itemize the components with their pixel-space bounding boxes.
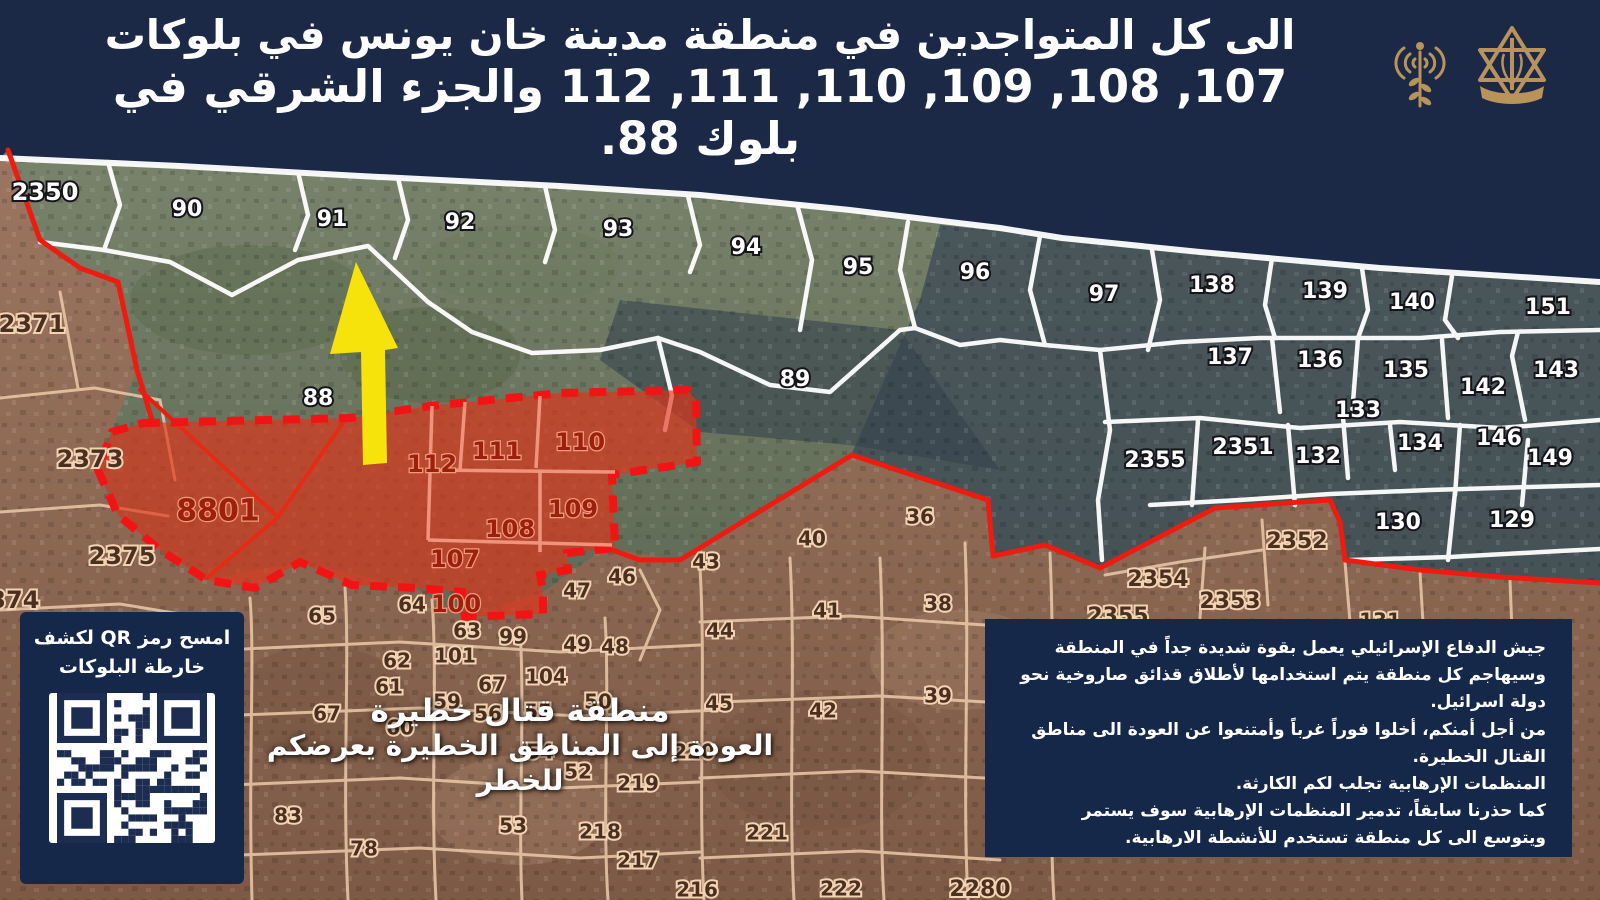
qr-module [71, 779, 78, 786]
block-label-44: 44 [706, 619, 734, 643]
qr-module [136, 757, 143, 764]
qr-module [200, 764, 207, 771]
qr-module [78, 779, 85, 786]
qr-module [143, 757, 150, 764]
qr-module [193, 800, 200, 807]
qr-module [114, 757, 121, 764]
qr-module [171, 807, 178, 814]
notice-line: وسيهاجم كل منطقة يتم استخدامها لأطلاق قذ… [1001, 662, 1546, 689]
block-label-2352: 2352 [1266, 529, 1327, 554]
qr-module [136, 829, 143, 836]
qr-module [114, 800, 121, 807]
qr-module [150, 750, 157, 757]
block-label-139: 139 [1302, 279, 1348, 304]
block-label-88: 88 [303, 386, 334, 411]
qr-module [186, 757, 193, 764]
qr-module [186, 771, 193, 778]
block-label-53: 53 [499, 814, 527, 838]
block-label-216: 216 [676, 878, 718, 900]
block-label-48: 48 [601, 635, 629, 659]
block-label-93: 93 [603, 217, 634, 242]
qr-module [100, 764, 107, 771]
qr-module [136, 729, 143, 736]
qr-module [178, 786, 185, 793]
block-label-89: 89 [780, 367, 811, 392]
qr-module [136, 793, 143, 800]
qr-module [121, 821, 128, 828]
notice-line: القتال الخطيرة. [1001, 744, 1546, 771]
qr-module [164, 807, 171, 814]
qr-module [200, 793, 207, 800]
block-label-143: 143 [1533, 358, 1579, 383]
qr-module [136, 786, 143, 793]
block-label-2350: 2350 [12, 178, 79, 206]
qr-module [150, 764, 157, 771]
qr-module [93, 779, 100, 786]
block-label-140: 140 [1389, 290, 1435, 315]
qr-module [143, 814, 150, 821]
qr-module [178, 807, 185, 814]
qr-module [164, 750, 171, 757]
qr-module [157, 786, 164, 793]
qr-module [143, 721, 150, 728]
block-label-138: 138 [1189, 273, 1235, 298]
block-label-47: 47 [563, 579, 591, 603]
qr-module [128, 829, 135, 836]
block-label-221: 221 [746, 821, 788, 845]
qr-module [136, 764, 143, 771]
qr-module [64, 750, 71, 757]
danger-warning-text: منطقة قتال خطيرة العودة إلى المناطق الخط… [240, 694, 800, 798]
header-line1: الى كل المتواجدين في منطقة مدينة خان يون… [70, 10, 1330, 61]
block-label-104: 104 [525, 665, 567, 689]
block-label-111: 111 [472, 437, 522, 465]
qr-module [57, 779, 64, 786]
qr-module [114, 729, 121, 736]
qr-module [128, 836, 135, 843]
qr-module [178, 836, 185, 843]
qr-module [114, 700, 121, 707]
qr-module [86, 771, 93, 778]
block-label-2375: 2375 [89, 542, 156, 570]
header-announcement: الى كل المتواجدين في منطقة مدينة خان يون… [70, 10, 1330, 165]
header-logos [1384, 22, 1554, 117]
qr-module [136, 714, 143, 721]
qr-module [171, 821, 178, 828]
qr-module [150, 757, 157, 764]
qr-module [193, 807, 200, 814]
idf-emblem-icon [1470, 24, 1554, 116]
header-line2: 107, 108, 109, 110, 111, 112 والجزء الشر… [70, 61, 1330, 165]
block-label-2355: 2355 [1124, 448, 1185, 473]
qr-module [136, 779, 143, 786]
radio-broadcast-icon [1384, 26, 1456, 114]
block-label-2354: 2354 [1127, 567, 1188, 592]
qr-module [164, 779, 171, 786]
block-label-46: 46 [608, 565, 636, 589]
notice-line: كما حذرنا سابقاً، تدمير المنظمات الإرهاب… [1001, 798, 1546, 825]
block-label-83: 83 [274, 804, 302, 828]
block-label-151: 151 [1525, 295, 1571, 320]
block-label-78: 78 [350, 837, 378, 861]
qr-module [136, 736, 143, 743]
qr-module [186, 786, 193, 793]
qr-module [150, 786, 157, 793]
qr-module [200, 750, 207, 757]
block-label-149: 149 [1527, 446, 1573, 471]
qr-module [86, 764, 93, 771]
block-label-218: 218 [579, 820, 621, 844]
block-label-2374: 2374 [0, 586, 39, 614]
block-label-109: 109 [548, 495, 598, 523]
qr-module [100, 757, 107, 764]
qr-module [178, 821, 185, 828]
block-label-36: 36 [906, 505, 934, 529]
qr-module [143, 714, 150, 721]
qr-module [114, 793, 121, 800]
block-label-39: 39 [924, 684, 952, 708]
qr-module [186, 836, 193, 843]
block-label-222: 222 [820, 877, 862, 900]
qr-module [193, 757, 200, 764]
qr-module [171, 829, 178, 836]
qr-module [186, 807, 193, 814]
block-label-91: 91 [317, 207, 348, 232]
block-label-64: 64 [398, 593, 426, 617]
qr-module [78, 757, 85, 764]
qr-module [200, 807, 207, 814]
notice-line: جيش الدفاع الإسرائيلي يعمل بقوة شديدة جد… [1001, 635, 1546, 662]
qr-module [121, 750, 128, 757]
qr-module [193, 786, 200, 793]
qr-module [114, 714, 121, 721]
block-label-90: 90 [172, 197, 203, 222]
notice-line: دولة اسرائيل. [1001, 689, 1546, 716]
qr-module [121, 807, 128, 814]
block-label-63: 63 [453, 619, 481, 643]
block-label-41: 41 [813, 599, 841, 623]
block-label-130: 130 [1375, 510, 1421, 535]
qr-panel: امسح رمز QR لكشف خارطة البلوكات [20, 612, 244, 884]
qr-module [71, 757, 78, 764]
block-label-2371: 2371 [0, 310, 65, 338]
qr-module [164, 821, 171, 828]
qr-module [71, 807, 92, 828]
block-label-217: 217 [617, 849, 659, 873]
qr-module [164, 771, 171, 778]
qr-module [100, 750, 107, 757]
qr-module [164, 786, 171, 793]
qr-module [71, 707, 92, 728]
qr-module [193, 771, 200, 778]
block-label-132: 132 [1295, 444, 1341, 469]
block-label-2353: 2353 [1199, 589, 1260, 614]
block-label-101: 101 [434, 644, 476, 668]
block-label-110: 110 [555, 428, 605, 456]
block-label-40: 40 [798, 527, 826, 551]
qr-module [114, 836, 121, 843]
block-label-2280: 2280 [949, 877, 1010, 900]
block-label-95: 95 [843, 255, 874, 280]
qr-module [186, 821, 193, 828]
notice-line: من أجل أمنكم، أخلوا فوراً غرباً وأمتنعوا… [1001, 717, 1546, 744]
block-label-99: 99 [499, 625, 527, 649]
block-label-107: 107 [430, 545, 480, 573]
qr-module [164, 800, 171, 807]
block-label-2373: 2373 [57, 445, 124, 473]
qr-module [178, 814, 185, 821]
qr-module [64, 771, 71, 778]
qr-module [121, 764, 128, 771]
qr-module [100, 779, 107, 786]
notice-line: ويتوسع الى كل منطقة تستخدم للأنشطة الاره… [1001, 825, 1546, 852]
block-label-8801: 8801 [176, 494, 260, 529]
qr-module [71, 771, 78, 778]
block-label-96: 96 [960, 260, 991, 285]
qr-code-image [57, 693, 207, 843]
warning-line2: العودة إلى المناطق الخطيرة يعرضكم للخطر [240, 728, 800, 798]
qr-module [128, 793, 135, 800]
qr-module [193, 750, 200, 757]
qr-module [143, 693, 150, 700]
qr-module [171, 786, 178, 793]
block-label-137: 137 [1207, 345, 1253, 370]
qr-module [107, 750, 114, 757]
block-label-94: 94 [731, 235, 762, 260]
qr-module [121, 729, 128, 736]
qr-module [136, 800, 143, 807]
qr-module [136, 721, 143, 728]
qr-module [114, 779, 121, 786]
qr-module [186, 829, 193, 836]
qr-title-line1: امسح رمز QR لكشف [20, 624, 244, 653]
block-label-49: 49 [563, 633, 591, 657]
block-label-42: 42 [809, 699, 837, 723]
block-label-134: 134 [1397, 431, 1443, 456]
block-label-38: 38 [924, 592, 952, 616]
qr-module [200, 800, 207, 807]
qr-module [171, 764, 178, 771]
block-label-136: 136 [1297, 348, 1343, 373]
qr-module [171, 836, 178, 843]
qr-module [128, 764, 135, 771]
qr-module [107, 757, 114, 764]
qr-module [143, 793, 150, 800]
block-label-97: 97 [1089, 282, 1120, 307]
qr-module [150, 814, 157, 821]
qr-module [128, 814, 135, 821]
block-label-112: 112 [407, 450, 457, 478]
block-label-133: 133 [1335, 398, 1381, 423]
qr-module [121, 771, 128, 778]
qr-module [93, 764, 100, 771]
qr-module [143, 786, 150, 793]
qr-title-line2: خارطة البلوكات [20, 653, 244, 682]
qr-module [107, 764, 114, 771]
block-label-92: 92 [445, 210, 476, 235]
qr-module [121, 793, 128, 800]
warning-line1: منطقة قتال خطيرة [240, 694, 800, 728]
qr-module [78, 764, 85, 771]
qr-module [136, 814, 143, 821]
block-label-146: 146 [1476, 426, 1522, 451]
qr-module [157, 779, 164, 786]
qr-module [143, 707, 150, 714]
qr-module [121, 836, 128, 843]
qr-code [49, 693, 215, 843]
block-label-43: 43 [692, 550, 720, 574]
block-label-100: 100 [431, 590, 481, 618]
block-label-2351: 2351 [1212, 435, 1273, 460]
evacuation-map-infographic: 2350909192939495969713813914015113713613… [0, 0, 1600, 900]
qr-module [114, 786, 121, 793]
qr-module [143, 764, 150, 771]
qr-module [143, 779, 150, 786]
block-label-142: 142 [1460, 375, 1506, 400]
qr-module [171, 707, 192, 728]
qr-module [143, 800, 150, 807]
qr-module [114, 736, 121, 743]
military-notice-box: جيش الدفاع الإسرائيلي يعمل بقوة شديدة جد… [985, 619, 1572, 857]
qr-module [157, 750, 164, 757]
block-label-135: 135 [1383, 358, 1429, 383]
qr-module [57, 750, 64, 757]
block-label-62: 62 [383, 649, 411, 673]
block-label-129: 129 [1489, 508, 1535, 533]
block-label-65: 65 [308, 604, 336, 628]
qr-module [128, 714, 135, 721]
block-label-108: 108 [485, 515, 535, 543]
notice-line: المنظمات الإرهابية تجلب لكم الكارثة. [1001, 771, 1546, 798]
qr-module [150, 829, 157, 836]
